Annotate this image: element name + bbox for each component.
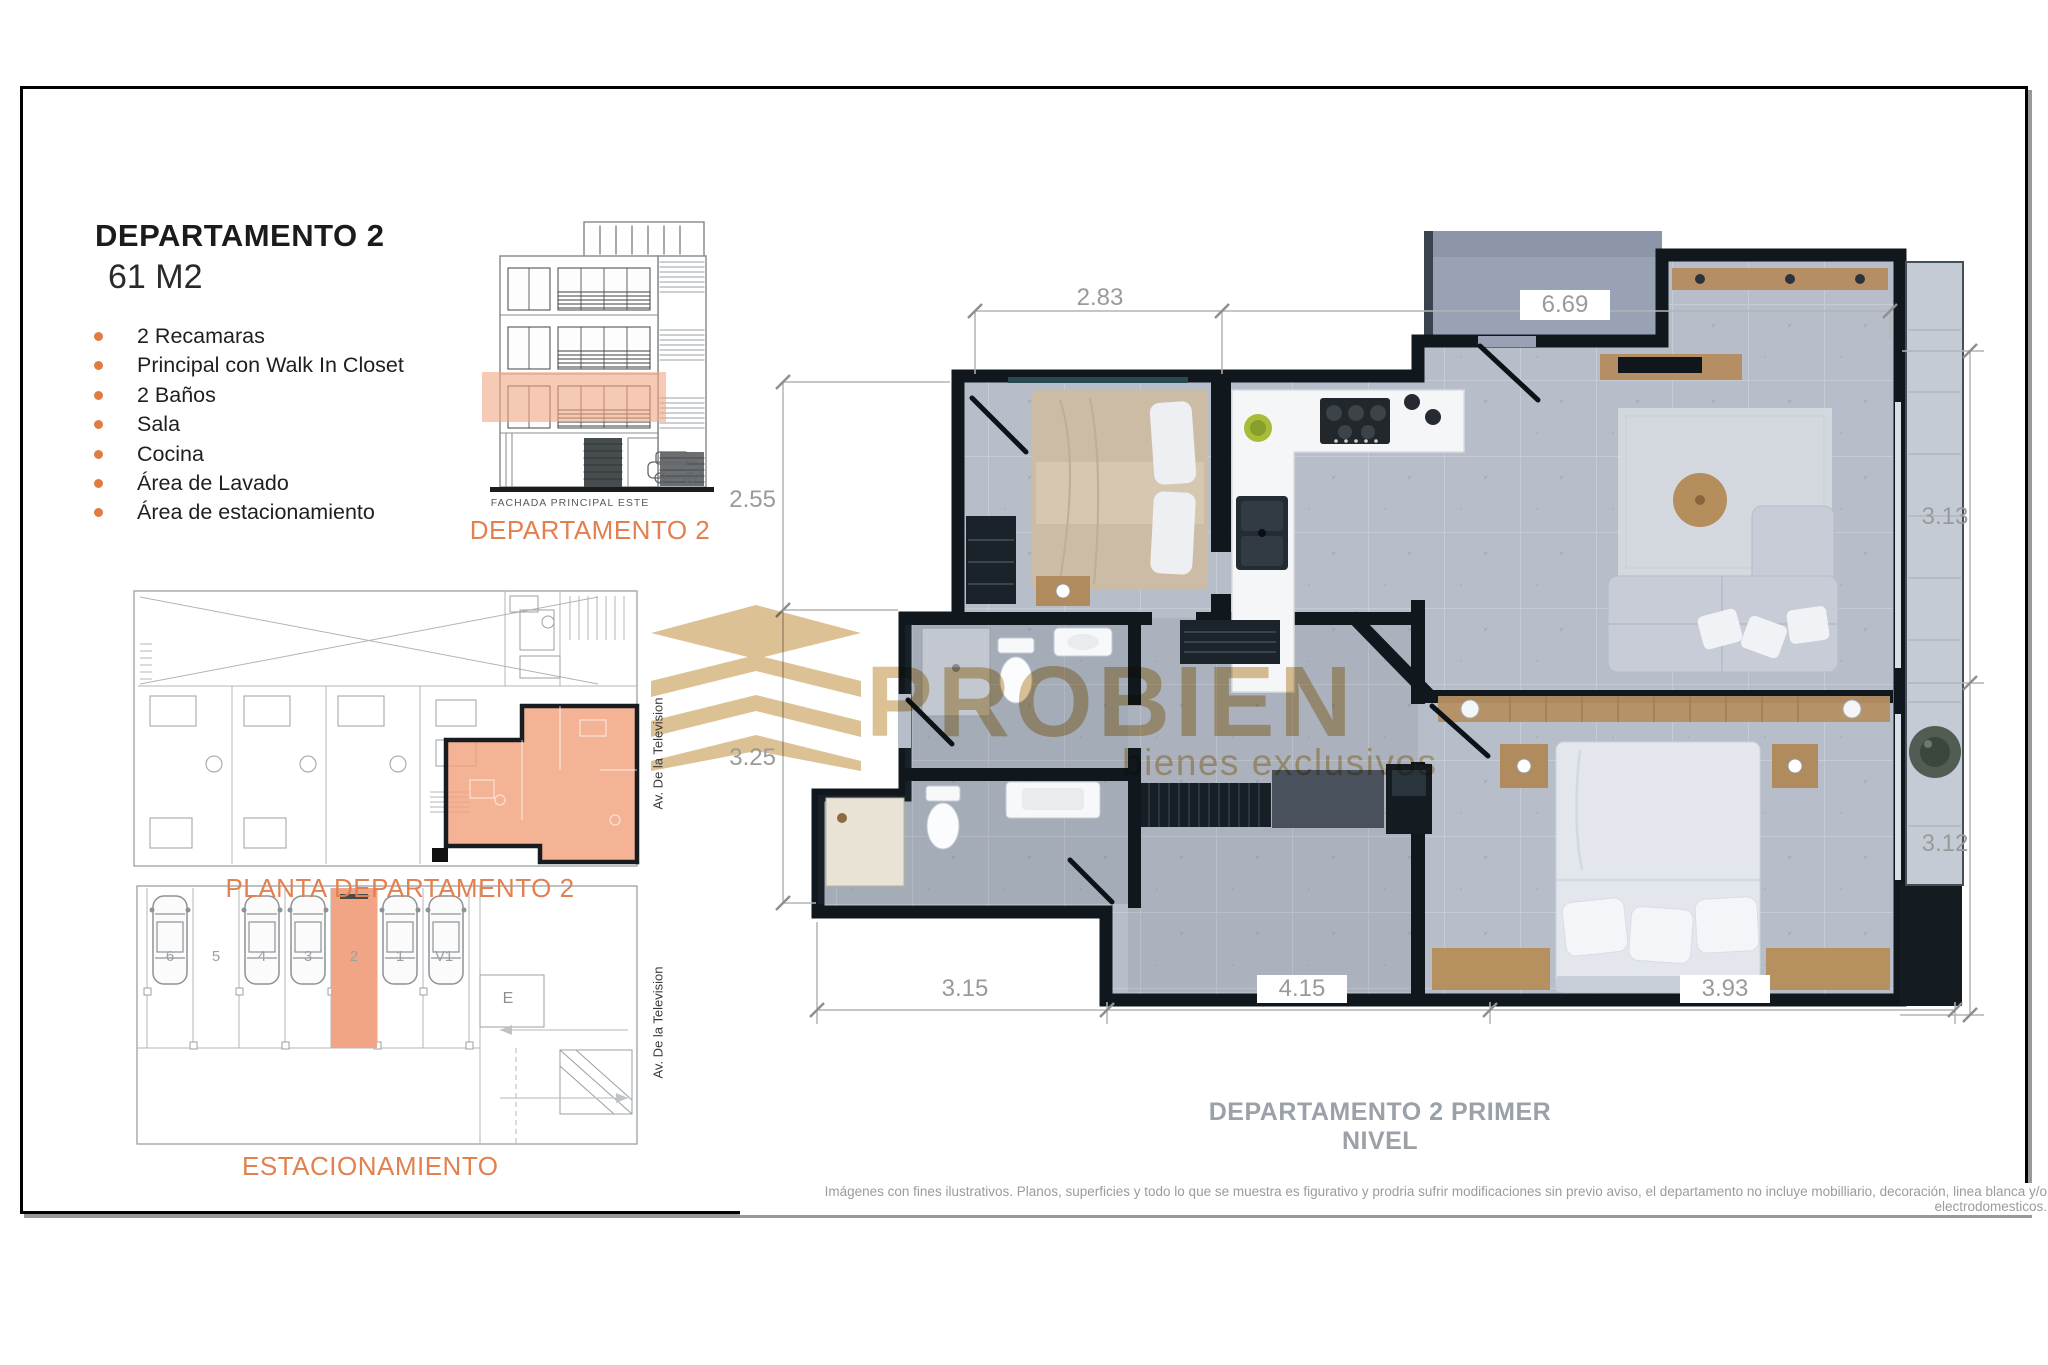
planta-caption: PLANTA DEPARTAMENTO 2 [225, 873, 575, 904]
dim-left-2: 3.25 [700, 744, 776, 772]
street-label-planta: Av. De la Television [651, 679, 666, 829]
small-floor-plan [134, 591, 637, 866]
elevator-label: E [496, 990, 520, 1008]
page-area: 61 M2 [108, 258, 203, 297]
cooktop [1320, 398, 1390, 444]
dim-bottom-2: 4.15 [1257, 975, 1347, 1003]
dim-top-1: 2.83 [1058, 284, 1142, 312]
list-item: Cocina [94, 442, 404, 471]
toilet-2 [927, 803, 959, 849]
parking-stall-2-highlight [331, 888, 377, 1048]
list-item: Sala [94, 412, 404, 441]
stall-label-v1: V1 [432, 948, 456, 965]
facade-planters [660, 262, 704, 428]
closet-slatted [1141, 783, 1271, 827]
dim-top-2: 6.69 [1520, 290, 1610, 320]
main-floor-plan [776, 231, 1984, 1024]
parking-caption: ESTACIONAMIENTO [242, 1151, 498, 1182]
list-item: 2 Baños [94, 383, 404, 412]
stall-label-1: 1 [388, 948, 412, 965]
stall-label-5: 5 [204, 948, 228, 965]
dim-bottom-1: 3.15 [920, 975, 1010, 1003]
wall-console [1438, 696, 1890, 722]
feature-list: 2 Recamaras Principal con Walk In Closet… [94, 324, 404, 530]
facade-highlight [482, 372, 666, 422]
disclaimer: Imágenes con fines ilustrativos. Planos,… [740, 1183, 2048, 1215]
facade-drawing [482, 222, 714, 492]
toilet-1 [1000, 657, 1032, 703]
stall-label-6: 6 [158, 948, 182, 965]
list-item: Área de estacionamiento [94, 500, 404, 529]
dim-bottom-3: 3.93 [1680, 975, 1770, 1003]
dim-right-1: 3.13 [1906, 503, 1984, 531]
parking-plan [137, 886, 637, 1144]
laundry-area [826, 798, 904, 886]
bullet-icon [94, 508, 103, 517]
stall-label-3: 3 [296, 948, 320, 965]
bullet-icon [94, 361, 103, 370]
bullet-icon [94, 391, 103, 400]
stall-label-4: 4 [250, 948, 274, 965]
bullet-icon [94, 450, 103, 459]
page-title: DEPARTAMENTO 2 [95, 218, 384, 254]
dim-right-2: 3.12 [1906, 830, 1984, 858]
facade-label: FACHADA PRINCIPAL ESTE [470, 497, 670, 509]
main-plan-caption: DEPARTAMENTO 2 PRIMER NIVEL [1170, 1098, 1590, 1156]
list-item: 2 Recamaras [94, 324, 404, 353]
bullet-icon [94, 332, 103, 341]
bullet-icon [94, 420, 103, 429]
list-item: Área de Lavado [94, 471, 404, 500]
dim-left-1: 2.55 [700, 486, 776, 514]
list-item: Principal con Walk In Closet [94, 353, 404, 382]
street-label-parking: Av. De la Television [651, 948, 666, 1098]
facade-caption: DEPARTAMENTO 2 [455, 515, 725, 546]
terrace [1424, 231, 1662, 341]
tv [1618, 357, 1702, 373]
stall-label-2: 2 [342, 948, 366, 965]
brochure-page: PROBIEN bienes exclusivos DEPARTAMENTO 2… [0, 0, 2048, 1365]
balcony [1906, 262, 1963, 885]
bullet-icon [94, 479, 103, 488]
